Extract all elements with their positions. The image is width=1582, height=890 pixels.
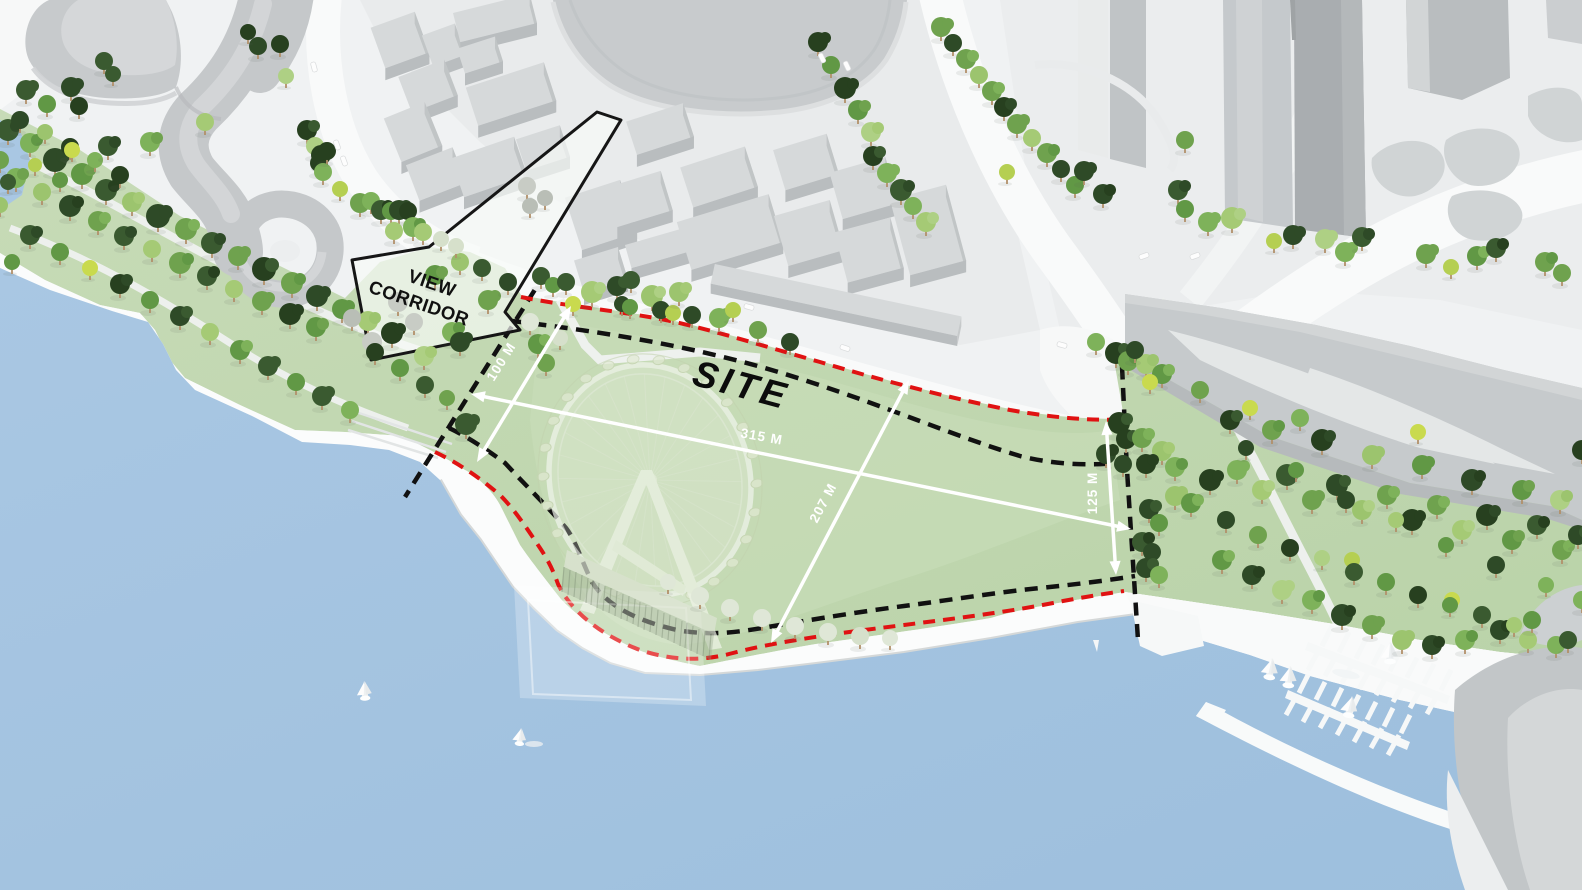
svg-text:125 M: 125 M [1085, 472, 1100, 515]
